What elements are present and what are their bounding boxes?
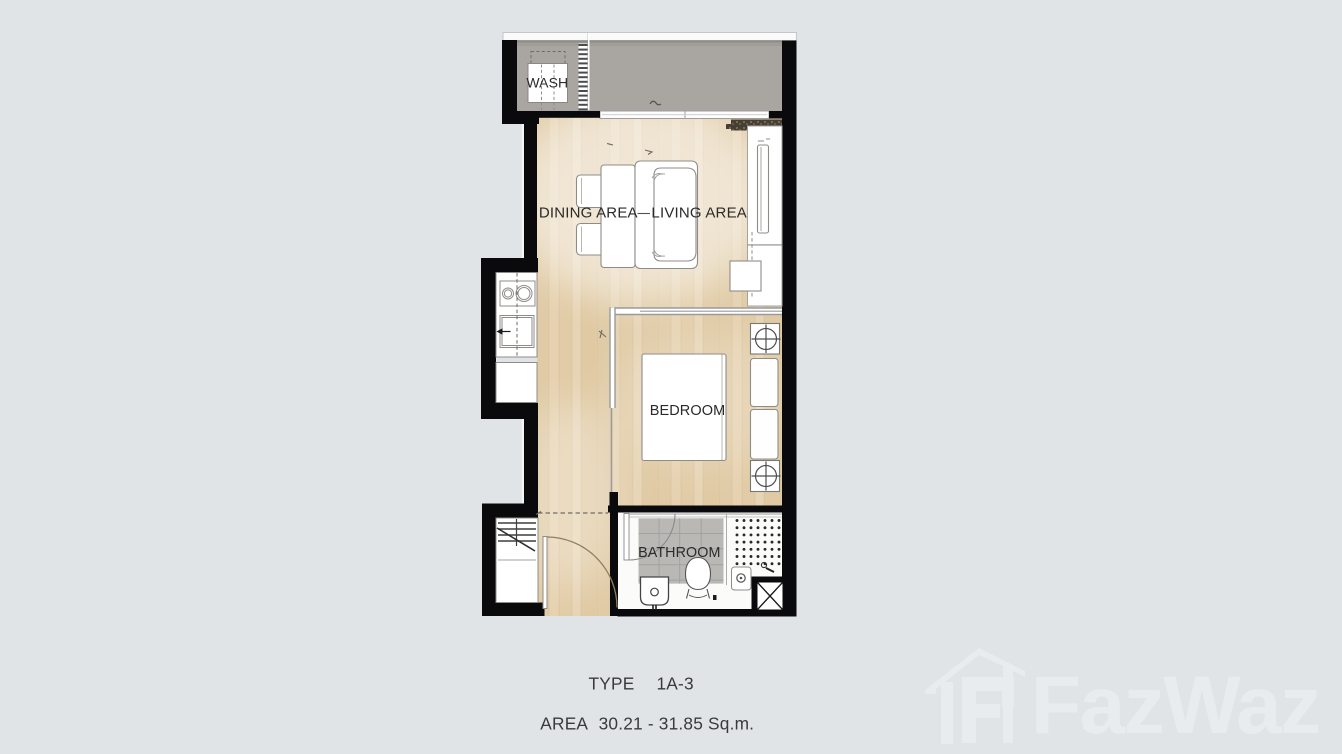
svg-text:1A-3: 1A-3	[657, 674, 694, 694]
svg-text:FazWaz: FazWaz	[1031, 660, 1320, 751]
svg-text:30.21 - 31.85 Sq.m.: 30.21 - 31.85 Sq.m.	[599, 714, 755, 734]
svg-text:AREA: AREA	[540, 714, 588, 734]
svg-text:DINING AREA: DINING AREA	[539, 205, 638, 222]
svg-text:LIVING AREA: LIVING AREA	[651, 205, 747, 222]
svg-text:TYPE: TYPE	[589, 674, 635, 694]
svg-text:BATHROOM: BATHROOM	[638, 545, 720, 561]
svg-text:WASH: WASH	[526, 75, 568, 91]
svg-text:BEDROOM: BEDROOM	[650, 403, 726, 419]
